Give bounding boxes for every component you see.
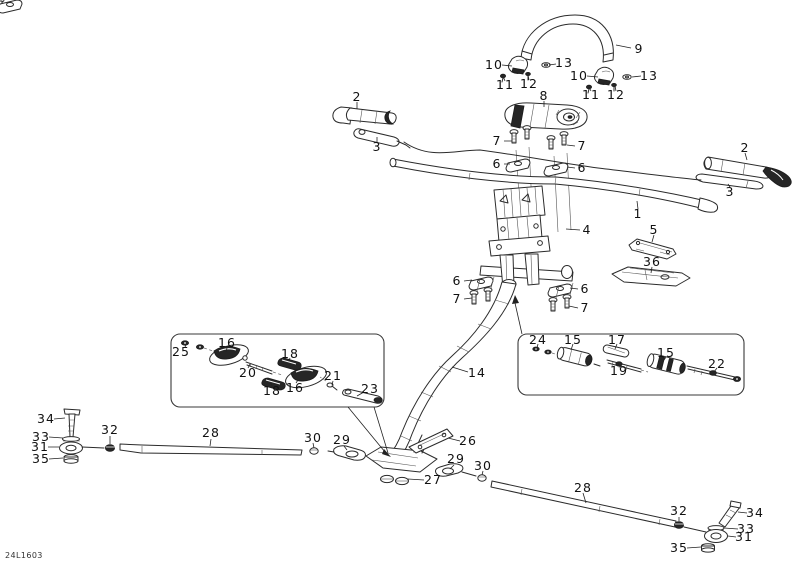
callout-inset-right-rod: 19: [610, 363, 628, 378]
callout-strap: 9: [635, 41, 644, 56]
strap-clamp: [508, 56, 527, 74]
callout-bracket-wide: 36: [643, 254, 661, 269]
lower-bolt-left-b: [484, 288, 492, 301]
callout-tierod-left-spacer: 35: [32, 451, 50, 466]
callout-strap-screw-left-b: 12: [520, 76, 538, 91]
callout-tierod-right-rod: 28: [574, 480, 592, 495]
handlebar-pad: [505, 103, 587, 129]
parts-diagram-page: 9 10 13 11 12 10 13 11 12 8 2 3 2 3 1 7 …: [0, 0, 800, 565]
callout-base-bracket: 26: [459, 433, 477, 448]
callout-strap-washer-right: 13: [640, 68, 658, 83]
callout-lower-clamp-left: 6: [453, 273, 462, 288]
strap-clamp-right: [594, 67, 613, 85]
callout-base-nuts: 27: [424, 472, 442, 487]
callout-lower-bolt-right: 7: [581, 300, 590, 315]
riser-bolt: [560, 132, 568, 145]
riser-bolt: [547, 136, 555, 149]
callout-strap-screw-right-b: 12: [607, 87, 625, 102]
callout-inset-left-strip-lower: 18: [263, 383, 281, 398]
steering-system-exploded-diagram: 9 10 13 11 12 10 13 11 12 8 2 3 2 3 1 7 …: [0, 0, 800, 565]
callout-steering-shaft: 14: [468, 365, 486, 380]
riser-clamp-right: [544, 163, 568, 176]
callout-inset-right-damper-right: 15: [657, 345, 675, 360]
drawing-code: 24L1603: [5, 551, 43, 560]
base-nuts: [381, 475, 410, 484]
callout-tierod-right-bolt: 34: [746, 505, 764, 520]
callout-tierod-left-end: 29: [333, 432, 351, 447]
callout-inset-right-washers: 24: [529, 332, 547, 347]
callout-inset-right-link: 22: [708, 356, 726, 371]
callout-strap-clamp-left: 10: [485, 57, 503, 72]
callout-riser-clamp-left: 6: [493, 156, 502, 171]
callout-lever-right: 3: [726, 184, 735, 199]
callout-lower-clamp-right: 6: [581, 281, 590, 296]
grip-left: [333, 107, 396, 124]
callout-tierod-right-nut-outer: 32: [670, 503, 688, 518]
tierod-right: [436, 464, 742, 552]
callout-riser-clamp-right: 6: [578, 160, 587, 175]
callout-grip-left: 2: [353, 89, 362, 104]
callout-tierod-right-balljoint: 31: [735, 529, 753, 544]
brake-lever-left: [354, 129, 410, 148]
callout-tierod-right-end: 29: [447, 451, 465, 466]
lower-bolt-right: [549, 298, 557, 311]
callout-tierod-left-rod: 28: [202, 425, 220, 440]
callout-inset-left-link: 23: [361, 381, 379, 396]
bracket-wide-36: [612, 267, 690, 286]
callout-strap-screw-left-a: 11: [496, 77, 514, 92]
callout-lever-left: 3: [373, 139, 382, 154]
lower-bolt-left: [470, 291, 478, 304]
leader-lines: [48, 45, 747, 548]
callout-riser-bolt-left: 7: [493, 133, 502, 148]
callout-inset-left-rod: 20: [239, 365, 257, 380]
callout-tierod-right-nut-inner: 30: [474, 458, 492, 473]
steering-column-upper: [480, 186, 573, 289]
callout-handlebar: 1: [634, 206, 643, 221]
riser-clamp-left: [506, 159, 530, 172]
riser-bolt: [523, 126, 531, 139]
callout-inset-left-bolt: 21: [324, 368, 342, 383]
callout-riser-bolt-right: 7: [578, 138, 587, 153]
callout-inset-left-clamp-lower: 16: [286, 380, 304, 395]
callout-lower-bolt-left: 7: [453, 291, 462, 306]
callout-inset-left-strip-upper: 18: [281, 346, 299, 361]
callout-strap-screw-right-a: 11: [582, 87, 600, 102]
callout-grip-right: 2: [741, 140, 750, 155]
callout-tierod-right-spacer: 35: [670, 540, 688, 555]
callout-tierod-left-nut-outer: 32: [101, 422, 119, 437]
callout-bracket-small: 5: [650, 222, 659, 237]
callout-inset-right-strip: 17: [608, 332, 626, 347]
callout-pad: 8: [540, 88, 549, 103]
callout-inset-right-damper-left: 15: [564, 332, 582, 347]
callout-inset-left-washers: 25: [172, 344, 190, 359]
callout-strap-clamp-right: 10: [570, 68, 588, 83]
callout-inset-left-clamp-upper: 16: [218, 335, 236, 350]
inset-right-leader: [512, 295, 522, 334]
callout-tierod-left-nut-inner: 30: [304, 430, 322, 445]
callout-tierod-left-bolt: 34: [37, 411, 55, 426]
callout-steering-column: 4: [583, 222, 592, 237]
